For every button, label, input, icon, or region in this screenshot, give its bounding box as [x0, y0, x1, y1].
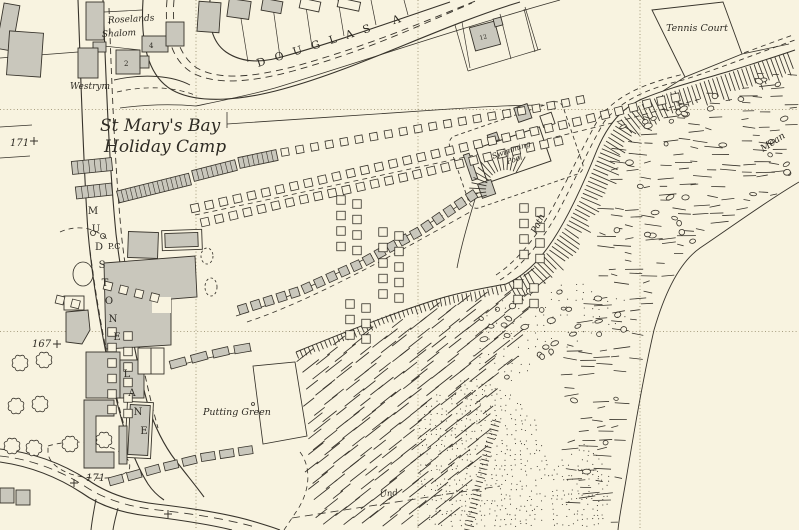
- map-canvas[interactable]: Roselands Shalom Westrym 4 2 12 DOUGLAS …: [0, 0, 799, 530]
- svg-text:O: O: [105, 296, 113, 307]
- label-holiday-camp-line2: Holiday Camp: [103, 137, 226, 157]
- house-4: [142, 36, 168, 52]
- svg-text:T: T: [102, 278, 109, 289]
- label-house-number-2: 2: [124, 60, 128, 68]
- label-public-convenience: P.C: [108, 242, 120, 251]
- label-putting-green: Putting Green: [202, 407, 271, 418]
- westrym-house: [78, 48, 98, 78]
- svg-text:N: N: [109, 314, 118, 325]
- label-holiday-camp-line1: St Mary's Bay: [100, 116, 221, 136]
- map-viewport[interactable]: Roselands Shalom Westrym 4 2 12 DOUGLAS …: [0, 0, 799, 530]
- svg-text:D: D: [95, 242, 103, 253]
- svg-text:E: E: [140, 426, 147, 437]
- label-westrym: Westrym: [70, 82, 110, 92]
- svg-text:N: N: [134, 407, 143, 418]
- spot-height-171: 171: [10, 138, 29, 149]
- label-shalom: Shalom: [102, 28, 137, 40]
- svg-text:A: A: [127, 388, 136, 399]
- label-house-number-4: 4: [149, 42, 154, 50]
- label-und-boundary: Und: [379, 488, 399, 500]
- svg-text:L: L: [124, 369, 131, 380]
- svg-text:E: E: [113, 332, 120, 343]
- label-tennis-court: Tennis Court: [666, 23, 728, 34]
- spot-height-171-south: 171: [86, 473, 105, 484]
- svg-text:M: M: [88, 206, 98, 217]
- svg-text:S: S: [99, 260, 106, 271]
- spot-height-167: 167: [32, 339, 52, 350]
- svg-text:U: U: [92, 224, 100, 235]
